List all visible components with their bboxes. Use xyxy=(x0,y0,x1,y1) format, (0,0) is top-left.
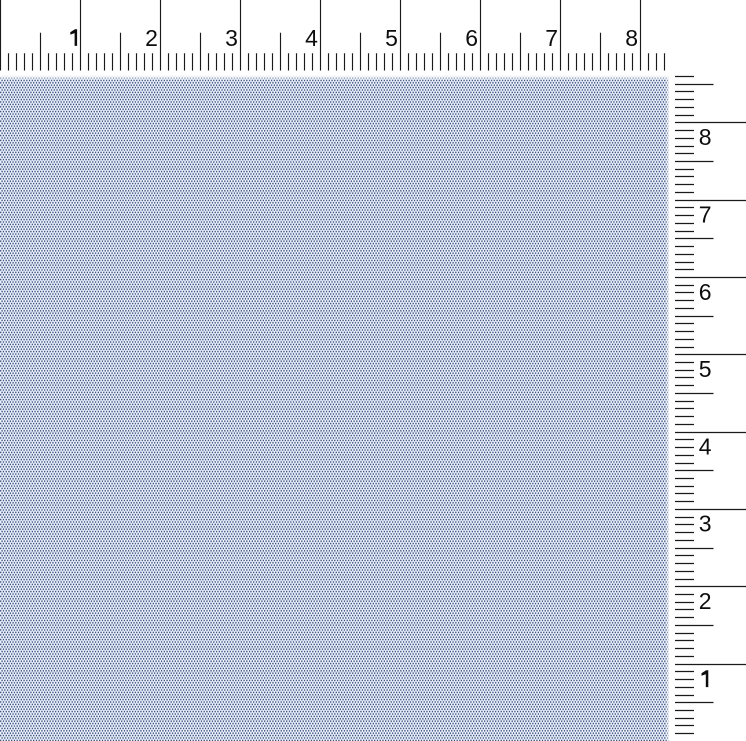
svg-text:2: 2 xyxy=(699,588,712,614)
svg-text:3: 3 xyxy=(225,25,238,51)
svg-text:8: 8 xyxy=(699,124,712,150)
svg-text:3: 3 xyxy=(699,511,712,537)
svg-text:2: 2 xyxy=(145,25,158,51)
svg-text:8: 8 xyxy=(625,25,638,51)
svg-text:6: 6 xyxy=(699,279,712,305)
svg-text:6: 6 xyxy=(465,25,478,51)
svg-text:5: 5 xyxy=(699,356,712,382)
svg-text:4: 4 xyxy=(699,433,712,459)
svg-text:4: 4 xyxy=(305,25,318,51)
svg-text:7: 7 xyxy=(545,25,558,51)
svg-text:7: 7 xyxy=(699,202,712,228)
svg-text:5: 5 xyxy=(385,25,398,51)
